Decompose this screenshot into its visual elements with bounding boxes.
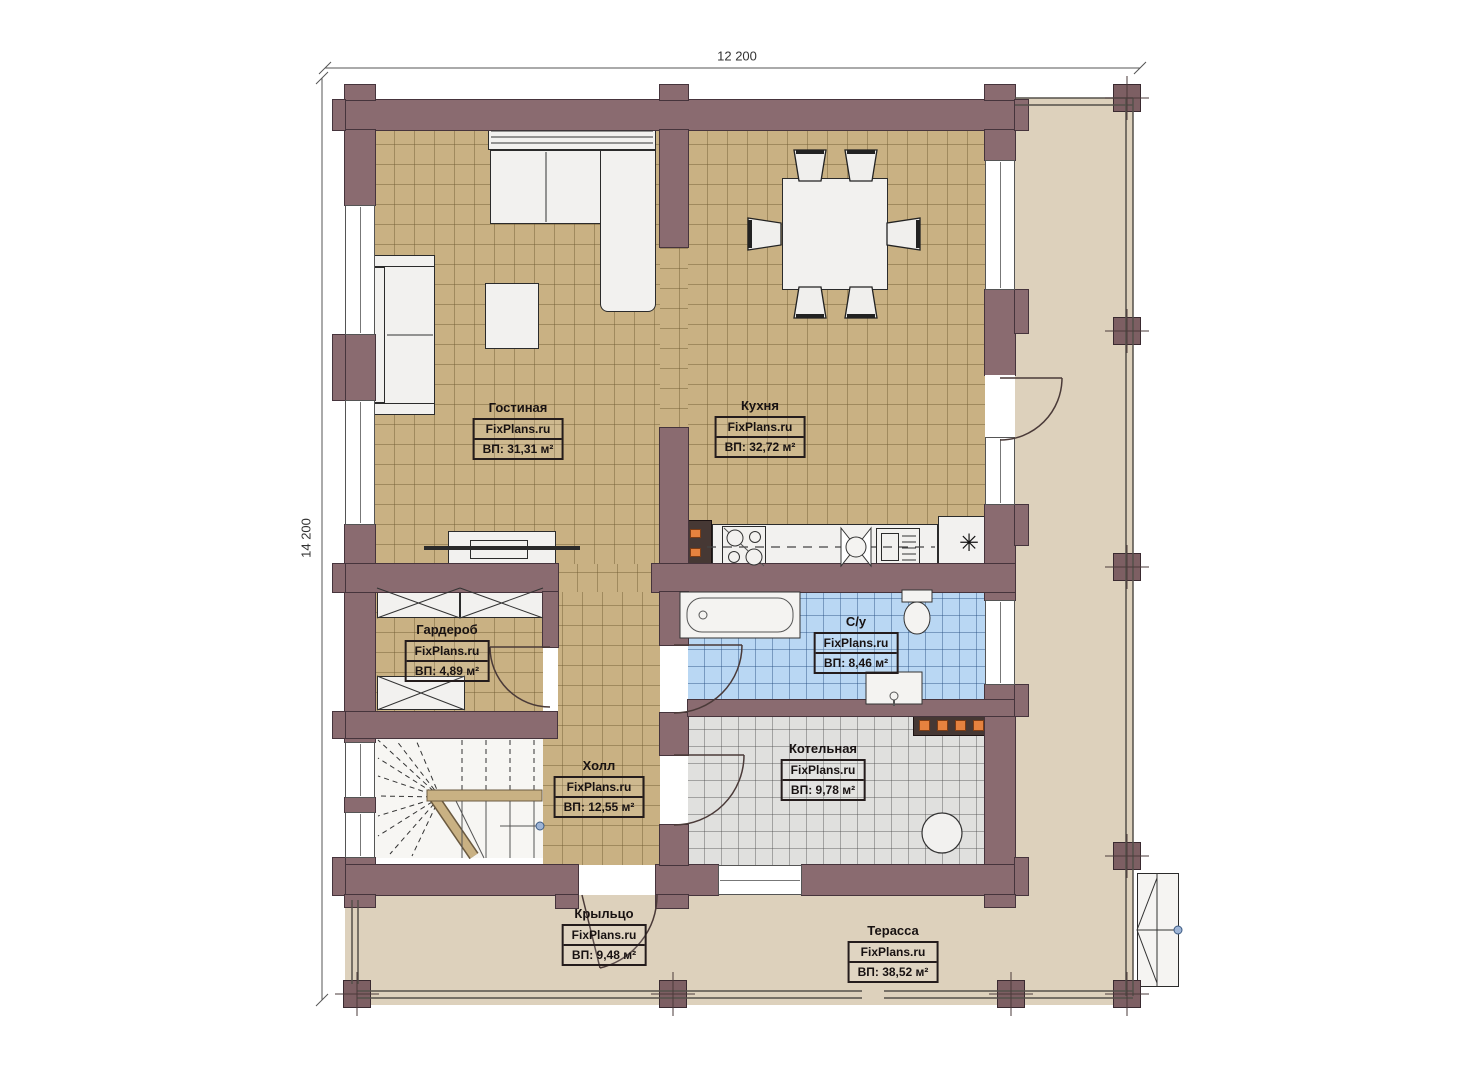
room-info-box: FixPlans.ru ВП: 9,48 м² bbox=[562, 924, 647, 966]
room-label-hall: Холл FixPlans.ru ВП: 12,55 м² bbox=[554, 758, 645, 818]
room-name: Терасса bbox=[848, 923, 939, 938]
chair bbox=[748, 218, 781, 250]
dishwasher-vents bbox=[902, 536, 916, 560]
boiler-tank bbox=[922, 813, 962, 853]
room-name: Крыльцо bbox=[562, 906, 647, 921]
stair-ray bbox=[390, 797, 440, 854]
room-area: ВП: 12,55 м² bbox=[556, 798, 643, 816]
stove-burner bbox=[750, 532, 761, 543]
room-name: Гардероб bbox=[405, 622, 490, 637]
door-swings bbox=[490, 378, 1062, 968]
toilet-bowl bbox=[904, 602, 930, 634]
door-arc bbox=[490, 647, 550, 707]
staircase bbox=[378, 740, 544, 858]
kitchen-counter-details bbox=[707, 528, 935, 566]
door-arc bbox=[674, 645, 742, 713]
room-name: С/у bbox=[814, 614, 899, 629]
stove-burner bbox=[746, 549, 762, 565]
kitchen-sink-bowl bbox=[846, 537, 866, 557]
chair bbox=[887, 218, 920, 250]
room-info-box: FixPlans.ru ВП: 31,31 м² bbox=[473, 418, 564, 460]
room-label-wardrobe: Гардероб FixPlans.ru ВП: 4,89 м² bbox=[405, 622, 490, 682]
room-label-bathroom: С/у FixPlans.ru ВП: 8,46 м² bbox=[814, 614, 899, 674]
room-area: ВП: 32,72 м² bbox=[717, 438, 804, 456]
room-area: ВП: 31,31 м² bbox=[475, 440, 562, 458]
room-info-box: FixPlans.ru ВП: 9,78 м² bbox=[781, 759, 866, 801]
room-info-box: FixPlans.ru ВП: 4,89 м² bbox=[405, 640, 490, 682]
room-name: Холл bbox=[554, 758, 645, 773]
watermark: FixPlans.ru bbox=[564, 926, 645, 946]
room-label-living: Гостиная FixPlans.ru ВП: 31,31 м² bbox=[473, 400, 564, 460]
watermark: FixPlans.ru bbox=[816, 634, 897, 654]
room-label-boiler: Котельная FixPlans.ru ВП: 9,78 м² bbox=[781, 741, 866, 801]
door-arc bbox=[674, 755, 744, 825]
room-info-box: FixPlans.ru ВП: 38,52 м² bbox=[848, 941, 939, 983]
chair bbox=[794, 287, 826, 318]
bathtub-drain bbox=[699, 611, 707, 619]
room-area: ВП: 8,46 м² bbox=[816, 654, 897, 672]
watermark: FixPlans.ru bbox=[850, 943, 937, 963]
watermark: FixPlans.ru bbox=[783, 761, 864, 781]
step-level-marker bbox=[1174, 926, 1182, 934]
stair-ray bbox=[378, 740, 440, 797]
room-name: Гостиная bbox=[473, 400, 564, 415]
room-name: Кухня bbox=[715, 398, 806, 413]
sofa-details bbox=[387, 131, 653, 335]
stove-burner bbox=[729, 552, 740, 563]
room-name: Котельная bbox=[781, 741, 866, 756]
room-area: ВП: 38,52 м² bbox=[850, 963, 937, 981]
room-area: ВП: 9,78 м² bbox=[783, 781, 864, 799]
watermark: FixPlans.ru bbox=[407, 642, 488, 662]
chair bbox=[845, 150, 877, 181]
watermark: FixPlans.ru bbox=[717, 418, 804, 438]
watermark: FixPlans.ru bbox=[556, 778, 643, 798]
room-label-porch: Крыльцо FixPlans.ru ВП: 9,48 м² bbox=[562, 906, 647, 966]
dining-chairs bbox=[748, 150, 920, 318]
dimension-line-top bbox=[319, 62, 1146, 74]
stove-burner bbox=[727, 530, 743, 546]
sink-drain bbox=[890, 692, 898, 700]
stair-landing-bar bbox=[427, 790, 542, 801]
room-label-kitchen: Кухня FixPlans.ru ВП: 32,72 м² bbox=[715, 398, 806, 458]
bathroom-door-swing bbox=[674, 645, 742, 713]
chair bbox=[845, 287, 877, 318]
dimension-top-label: 12 200 bbox=[717, 49, 757, 64]
dimension-left-label: 14 200 bbox=[299, 518, 314, 558]
floor-plan-canvas: ✳ bbox=[0, 0, 1473, 1080]
stair-ray bbox=[416, 740, 440, 797]
exterior-steps-detail bbox=[1137, 873, 1182, 987]
room-info-box: FixPlans.ru ВП: 12,55 м² bbox=[554, 776, 645, 818]
room-area: ВП: 4,89 м² bbox=[407, 662, 488, 680]
door-arc bbox=[1000, 378, 1062, 440]
room-info-box: FixPlans.ru ВП: 32,72 м² bbox=[715, 416, 806, 458]
room-area: ВП: 9,48 м² bbox=[564, 946, 645, 964]
watermark: FixPlans.ru bbox=[475, 420, 562, 440]
terrace-railing bbox=[352, 98, 1133, 998]
stair-ray bbox=[396, 740, 440, 797]
room-label-terrace: Терасса FixPlans.ru ВП: 38,52 м² bbox=[848, 923, 939, 983]
toilet-tank bbox=[902, 590, 932, 602]
vector-overlay bbox=[0, 0, 1473, 1080]
post-ticks bbox=[335, 76, 1149, 1016]
stair-level-marker bbox=[536, 822, 544, 830]
room-info-box: FixPlans.ru ВП: 8,46 м² bbox=[814, 632, 899, 674]
kitchen-terrace-door-swing bbox=[1000, 378, 1062, 440]
dimension-line-left bbox=[316, 72, 328, 1006]
wardrobe-door-swing bbox=[490, 647, 550, 707]
boiler-door-swing bbox=[674, 755, 744, 825]
chair bbox=[794, 150, 826, 181]
